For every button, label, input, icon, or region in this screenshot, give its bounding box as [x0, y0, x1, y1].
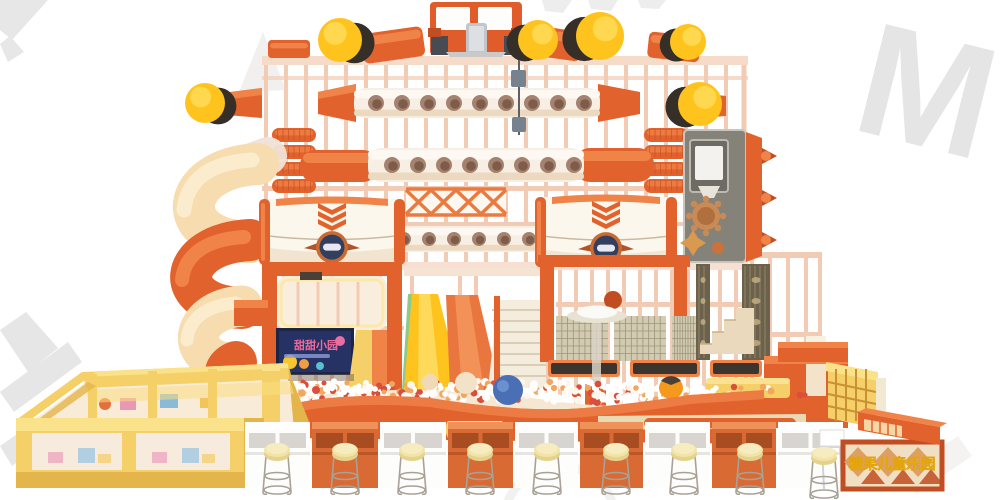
svg-text:糖果儿童乐园: 糖果儿童乐园 — [849, 455, 936, 473]
svg-text:甜甜小园: 甜甜小园 — [294, 338, 338, 352]
svg-text:M: M — [841, 0, 1000, 194]
